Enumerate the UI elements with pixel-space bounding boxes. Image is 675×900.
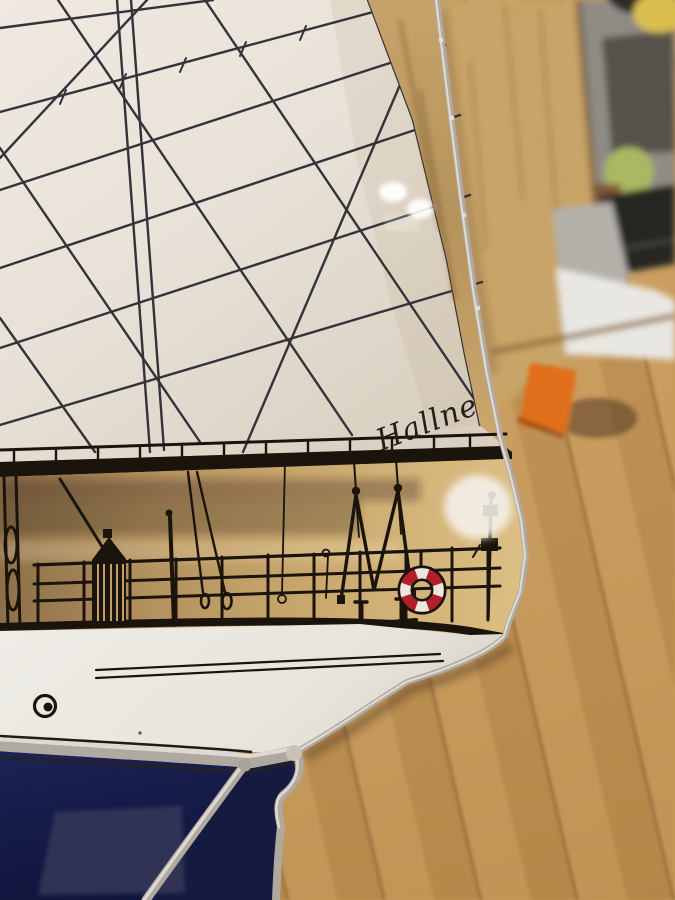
reflection-blob-large xyxy=(444,475,512,539)
reflection-faint-square xyxy=(385,215,419,231)
sea-panel xyxy=(0,747,295,900)
hull-speck xyxy=(138,731,141,734)
photo-frame: Hallne xyxy=(0,0,675,900)
solder-joint-blob-2 xyxy=(239,759,252,772)
solder-joint-blob xyxy=(286,745,302,761)
reflection-dot-1 xyxy=(379,182,407,202)
stained-glass-ship-panel: Hallne xyxy=(0,0,675,900)
deck-band xyxy=(0,459,526,634)
